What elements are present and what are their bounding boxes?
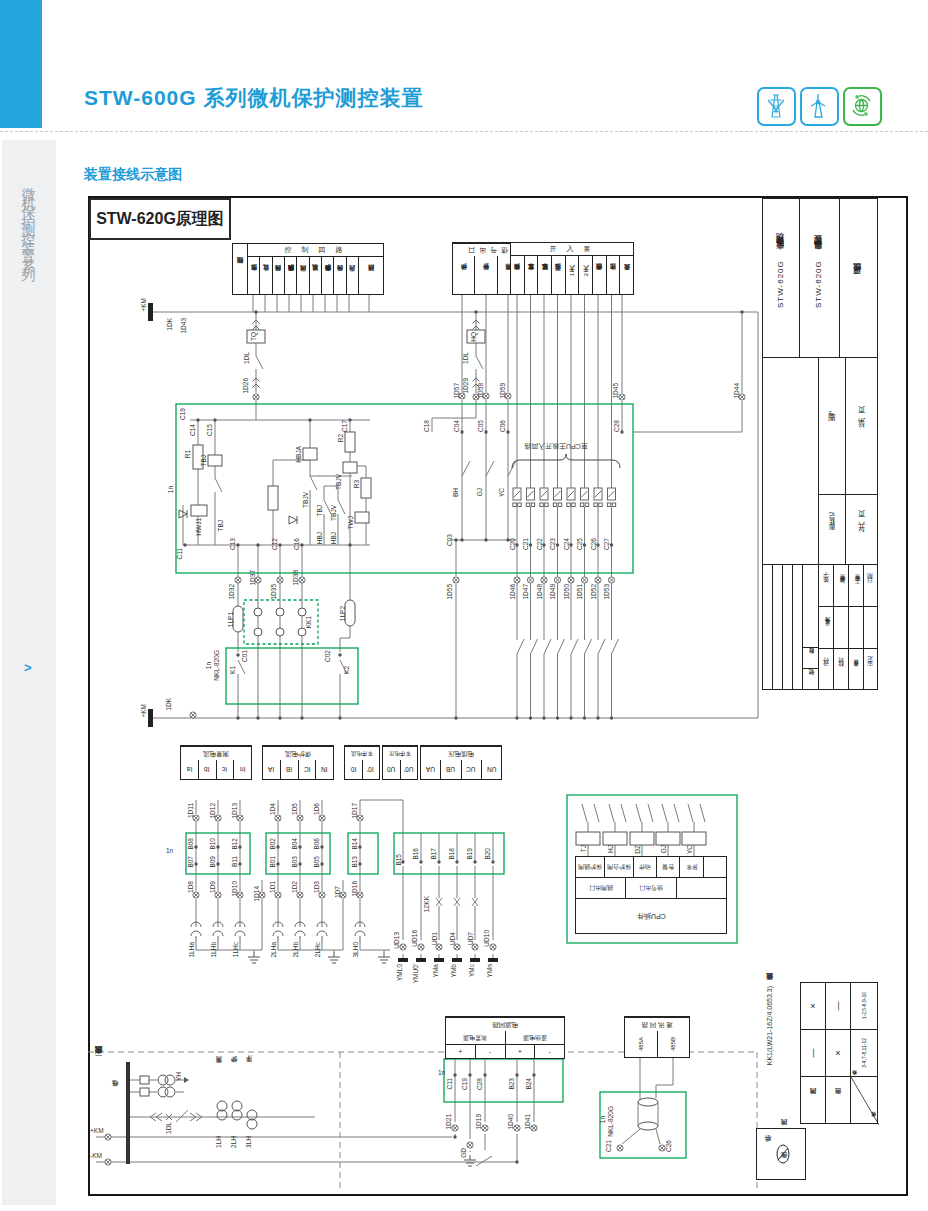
schematic-label: +KM: [141, 298, 148, 312]
schematic-label: 1D19: [476, 1114, 483, 1130]
kk1-mark: —: [825, 982, 851, 1030]
comm-cell: 485B: [670, 1037, 676, 1051]
titleblock-tag: 标记: [802, 668, 819, 690]
schematic-label: UD13: [394, 932, 401, 949]
schematic-label: YMa: [433, 964, 440, 977]
schematic-label: 1D58: [478, 383, 485, 399]
schematic-label: YMU0′: [413, 964, 420, 983]
control-circuit-table: 控制母线 控 制 回 路 操作电源 合位监视 跳闸保持 保护跳闸手动跳闸 跳闸出…: [232, 243, 384, 295]
schematic-label: GD: [461, 1148, 468, 1158]
schematic-label: C17: [342, 420, 349, 432]
zero-seq-voltage-table: 零序电压 U0 U0′: [382, 745, 418, 780]
schematic-label: C13: [230, 538, 237, 550]
titleblock-system: STW-620G 变电站综合自动化系统: [762, 198, 800, 358]
schematic-label: 1D29: [463, 378, 470, 394]
schematic-label: 1D40: [508, 1114, 515, 1130]
comm-header: 通 讯 回 路: [625, 1017, 689, 1031]
schematic-label: C19: [462, 1078, 469, 1090]
schematic-label: 1D35: [271, 584, 278, 600]
schematic-label: B19: [467, 848, 474, 860]
analog-cell: UN: [487, 766, 496, 773]
titleblock-chief: 主管设计员: [848, 648, 864, 690]
schematic-label: C26: [591, 538, 598, 550]
schematic-label: TWJ: [348, 516, 355, 529]
analog-cell: IB: [286, 766, 292, 773]
schematic-label: 2LHb: [293, 942, 300, 958]
schematic-label: C16: [294, 538, 301, 550]
schematic-label: 1n: [206, 662, 213, 669]
digital-input-table: 开 入 量 弹簧未储能 手车工作位置 手车试验位置 接地刀位置 开入1 开入2 …: [510, 242, 634, 295]
schematic-label: 1D44: [734, 383, 741, 399]
cpu-plugin-table: 保护跳闸 保护合闸 动作 告警 异常 跳闸出口 信号出口 CPU插件: [575, 856, 727, 934]
cpu-cell: 保护跳闸: [578, 864, 602, 870]
kk1-op: 跳闸: [800, 1076, 826, 1124]
schematic-label: B14: [352, 838, 359, 850]
titleblock-approve: 审 定: [863, 648, 878, 690]
power-sub: 遥信电源: [523, 1033, 547, 1042]
schematic-label: 1DL: [463, 352, 470, 364]
schematic-label: UD1: [432, 932, 439, 945]
schematic-label: TBJ: [218, 520, 225, 532]
schematic-label: YMn: [487, 964, 494, 977]
primary-ct-label: 1LH: [216, 1136, 223, 1148]
schematic-label: B04: [292, 838, 299, 850]
schematic-label: 1D49: [550, 584, 557, 600]
schematic-label: 1LHa: [189, 942, 196, 958]
analog-header: 电缆电压: [421, 746, 501, 760]
schematic-label: B13: [352, 856, 359, 868]
schematic-label: 1D32: [229, 584, 236, 600]
kk1-contacts: 1-2,5-6,9-10: [850, 982, 878, 1030]
kk1-corner: 触点号 操作方式: [850, 1076, 878, 1124]
schematic-label: 1D6: [314, 803, 321, 815]
titleblock-design: 设 计: [818, 648, 834, 690]
analog-cell: I0: [351, 766, 356, 773]
schematic-label: NKL-820G: [214, 650, 221, 681]
schematic-label: HBJ: [317, 532, 324, 544]
schematic-label: B07: [188, 856, 195, 868]
coil-label: YC: [687, 845, 694, 854]
schematic-label: C19: [180, 408, 187, 420]
schematic-label: 1D50: [564, 584, 571, 600]
analog-cell: IN: [321, 766, 328, 773]
schematic-label: B24: [526, 1078, 533, 1090]
schematic-label: 1D47: [523, 584, 530, 600]
kk1-mark: ×: [825, 1029, 851, 1077]
schematic-label: C23: [550, 538, 557, 550]
power-cell: +: [458, 1048, 462, 1055]
titleblock-check: 校 对: [833, 648, 849, 690]
schematic-label: 1LHb: [211, 942, 218, 958]
analog-header: 零序电流: [345, 746, 379, 760]
schematic-label: C28: [614, 420, 621, 432]
schematic-label: KK1: [306, 616, 313, 628]
power-cell: +: [518, 1048, 522, 1055]
titleblock-page: 第 1 页: [845, 357, 878, 495]
analog-cell: UB: [446, 766, 455, 773]
schematic-label: B18: [449, 848, 456, 860]
schematic-label: 3LH0: [353, 942, 360, 958]
schematic-label: TBJV: [336, 474, 343, 490]
analog-cell: I0′: [367, 766, 374, 773]
schematic-label: B03: [292, 856, 299, 868]
power-sub: 装置电源: [463, 1033, 487, 1042]
schematic-label: 1D38: [293, 570, 300, 586]
schematic-label: C27: [604, 538, 611, 550]
titleblock-doctype: 原理接线图: [839, 198, 878, 358]
schematic-label: GJ: [477, 488, 484, 496]
titleblock-device: STW-620G 电容器保护测控装置: [799, 198, 840, 358]
schematic-label: 1D3: [314, 881, 321, 893]
schematic-label: 2LHa: [271, 942, 278, 958]
titleblock-std: 标准审查: [833, 564, 849, 607]
di-col: 开入2: [583, 273, 589, 276]
schematic-label: C11: [447, 1078, 454, 1089]
schematic-label: NKL-820G: [608, 1106, 615, 1137]
schematic-label: 1D51: [577, 584, 584, 600]
schematic-label: R3: [354, 480, 361, 488]
measure-current-table: 测量电流 Ia Ib Ic In: [180, 745, 252, 780]
schematic-label: YC: [499, 488, 506, 497]
schematic-label: YML0: [397, 964, 404, 981]
schematic-label: R2: [338, 434, 345, 442]
schematic-label: 1D10: [232, 881, 239, 897]
kk1-title: KK1(LW21-16Z/4.0653.3)触点位置表: [766, 986, 773, 1065]
schematic-label: 至CPU主板开入回路: [524, 443, 588, 450]
schematic-label: C03: [447, 534, 454, 546]
titleblock-pages: 共 2 页: [845, 494, 878, 565]
schematic-label: 1D53: [604, 584, 611, 600]
schematic-label: 1D21: [446, 1114, 453, 1130]
schematic-label: 1D14: [254, 886, 261, 902]
schematic-label: 1ZKK: [424, 896, 431, 912]
schematic-label: 2LHc: [315, 942, 322, 957]
schematic-label: 1D9: [210, 881, 217, 893]
schematic-label: UD16: [412, 930, 419, 947]
schematic-label: C25: [577, 538, 584, 550]
schematic-label: 1LP1: [228, 612, 235, 627]
zero-seq-current-table: 零序电流 I0 I0′: [344, 745, 380, 780]
schematic-label: 1D43: [181, 318, 188, 334]
cpu-cell: 保护合闸: [607, 864, 631, 870]
cpu-cell: 动作: [639, 864, 651, 870]
schematic-label: 1D8: [188, 881, 195, 893]
primary-breaker-label: 1DL: [166, 1122, 173, 1134]
schematic-label: 1D12: [210, 803, 217, 819]
schematic-label: B15: [396, 854, 403, 866]
power-cell: -: [489, 1048, 491, 1055]
analog-header: 保护电流: [263, 746, 333, 760]
analog-cell: U0′: [404, 766, 414, 773]
page: STW-600G 系列微机保护测控装置 微机保护测控装置系列 > 装置接线示意图…: [0, 0, 928, 1211]
titleblock-date: 日 期: [863, 564, 878, 607]
titleblock-craft: 工艺审查: [848, 564, 864, 607]
cpu-cell: 异常: [686, 864, 698, 870]
schematic-label: 1n: [600, 1116, 607, 1123]
schematic-label: 1n: [166, 848, 173, 855]
schematic-label: 1D1: [270, 881, 277, 893]
coil-label: TJ: [581, 845, 588, 852]
analog-cell: UC: [466, 766, 475, 773]
coil-label: DZ: [635, 845, 642, 854]
schematic-label: C11: [177, 548, 184, 559]
schematic-label: HQ: [471, 332, 478, 342]
comm-cell: 485A: [638, 1037, 644, 1051]
schematic-label: C18: [424, 420, 431, 432]
schematic-label: TQ: [251, 332, 258, 341]
kk1-handle-box: 跳闸 合闸 手柄: [756, 1128, 806, 1180]
analog-header: 测量电流: [181, 746, 251, 760]
schematic-label: 1D17: [352, 803, 359, 819]
schematic-label: UD7: [468, 932, 475, 945]
schematic-label: B12: [232, 838, 239, 850]
schematic-label: B11: [232, 856, 239, 867]
schematic-label: K2: [344, 666, 351, 674]
schematic-label: B05: [314, 856, 321, 868]
schematic-label: B23: [509, 1078, 516, 1090]
analog-cell: UA: [426, 766, 435, 773]
titleblock-figno: 图 号: [818, 357, 846, 495]
schematic-label: C22: [537, 538, 544, 550]
power-cell: -: [549, 1048, 551, 1055]
schematic-label: 1D59: [500, 383, 507, 399]
titleblock-blank: [762, 357, 819, 565]
cable-voltage-table: 电缆电压 UA UB UC UN: [420, 745, 502, 780]
schematic-label: 1DL: [244, 352, 251, 364]
schematic-label: HBJA: [296, 446, 303, 463]
schematic-label: UD10: [484, 930, 491, 947]
titleblock-cell: [848, 606, 864, 649]
kk1-op: 合闸: [825, 1076, 851, 1124]
schematic-label: YMc: [469, 964, 476, 977]
schematic-label: C12: [272, 538, 279, 550]
schematic-label: 1D16: [352, 881, 359, 897]
schematic-label: C04: [454, 420, 461, 432]
schematic-label: B01: [270, 856, 277, 868]
kk1-mark: ×: [800, 982, 826, 1030]
digital-input-header: 开 入 量: [511, 243, 633, 256]
schematic-label: C24: [564, 538, 571, 550]
cpu-cell: 跳闸出口: [589, 885, 613, 891]
cpu-cell: 信号出口: [639, 885, 663, 891]
analog-header: 零序电压: [383, 746, 417, 760]
primary-ct-label: 2LH: [231, 1136, 238, 1148]
schematic-label: 1D2: [292, 881, 299, 893]
schematic-label: C14: [190, 424, 197, 436]
schematic-label: 1D45: [613, 383, 620, 399]
cpu-cell: CPU插件: [637, 913, 666, 920]
schematic-label: -KM: [90, 1153, 102, 1160]
schematic-label: B16: [413, 848, 420, 860]
protect-current-table: 保护电流 IA IB IC IN: [262, 745, 334, 780]
power-header: 电源回路: [446, 1017, 564, 1031]
power-circuit-table: 电源回路 装置电源 遥信电源 + - + -: [445, 1016, 565, 1059]
schematic-label: TBJV: [303, 492, 310, 508]
kk1-mark: —: [800, 1029, 826, 1077]
schematic-label: C21: [606, 1140, 613, 1152]
analog-cell: Ic: [222, 766, 227, 773]
schematic-label: 1D26: [243, 378, 250, 394]
schematic-label: K1: [230, 666, 237, 674]
schematic-label: 1D11: [188, 803, 195, 818]
coil-label: GJ: [661, 845, 668, 853]
schematic-label: C21: [523, 538, 530, 550]
schematic-label: +KM: [90, 1128, 104, 1135]
schematic-label: 1D57: [454, 383, 461, 399]
titleblock-cell: [833, 606, 849, 649]
schematic-label: +KM: [141, 704, 148, 718]
coil-label: HJ: [608, 845, 615, 853]
schematic-label: R1: [185, 450, 192, 458]
schematic-label: C02: [325, 650, 332, 662]
schematic-label: 1D37: [250, 570, 257, 586]
schematic-label: TBJV: [331, 505, 338, 521]
schematic-label: C06: [500, 420, 507, 432]
schematic-label: HBJ: [331, 532, 338, 544]
titleblock-cell: [863, 606, 878, 649]
schematic-label: C28: [477, 1078, 484, 1090]
schematic-label: 1D46: [510, 584, 517, 600]
schematic-label: TBJ: [201, 455, 208, 467]
schematic-label: UD4: [450, 932, 457, 945]
schematic-label: 1LHc: [233, 942, 240, 957]
schematic-label: 1D7: [335, 886, 342, 898]
analog-cell: In: [240, 766, 245, 773]
schematic-label: YMb: [451, 964, 458, 977]
schematic-label: 1D4: [270, 803, 277, 815]
titleblock-mark: 图 样 标 记: [818, 494, 846, 565]
schematic-label: 1D41: [525, 1114, 532, 1130]
analog-cell: IC: [304, 766, 311, 773]
schematic-label: 1D52: [591, 584, 598, 600]
schematic-label: B08: [188, 838, 195, 850]
titleblock-sign: 签 字: [818, 564, 834, 607]
analog-cell: U0: [387, 766, 395, 773]
schematic-label: 1n: [168, 486, 175, 493]
schematic-label: C15: [207, 424, 214, 436]
titleblock-count: 处数: [802, 647, 819, 669]
schematic-label: BH: [453, 488, 460, 497]
analog-cell: IA: [268, 766, 274, 773]
schematic-label: 1D13: [232, 803, 239, 819]
schematic-label: C20: [510, 538, 517, 550]
schematic-label: 1n: [438, 1070, 445, 1077]
schematic-label: B17: [431, 848, 438, 860]
comm-circuit-table: 通 讯 回 路 485A 485B: [624, 1016, 690, 1058]
kk1-contacts: 3-4,7-8,11-12: [850, 1029, 878, 1077]
schematic-label: 1D48: [537, 584, 544, 600]
cpu-cell: 告警: [662, 864, 674, 870]
schematic-label: B09: [210, 856, 217, 868]
schematic-label: C26: [666, 1140, 673, 1152]
primary-pt-label: YH: [176, 1072, 183, 1081]
schematic-label: B02: [270, 838, 277, 850]
schematic-label: C05: [478, 420, 485, 432]
schematic-label: HWJ1: [196, 518, 203, 536]
schematic-label: TBJ: [317, 505, 324, 517]
primary-ct-label: 3LH: [246, 1136, 253, 1148]
titleblock-cell: [802, 564, 819, 648]
schematic-label: 1D5: [292, 803, 299, 815]
titleblock-change: 更改文件号: [818, 606, 834, 649]
schematic-label: B06: [314, 838, 321, 850]
schematic-label: 1DK: [167, 318, 174, 331]
schematic-label: B10: [210, 838, 217, 850]
schematic-label: 1LP2: [340, 606, 347, 621]
di-col: 开入1: [569, 273, 575, 276]
schematic-label: B20: [485, 848, 492, 860]
schematic-label: 1D55: [447, 584, 454, 600]
schematic-label: C01: [242, 650, 249, 662]
control-circuit-header: 控 制 回 路: [248, 244, 383, 257]
analog-cell: Ib: [204, 766, 209, 773]
schematic-label: 1DK: [166, 698, 173, 711]
analog-cell: Ia: [187, 766, 192, 773]
